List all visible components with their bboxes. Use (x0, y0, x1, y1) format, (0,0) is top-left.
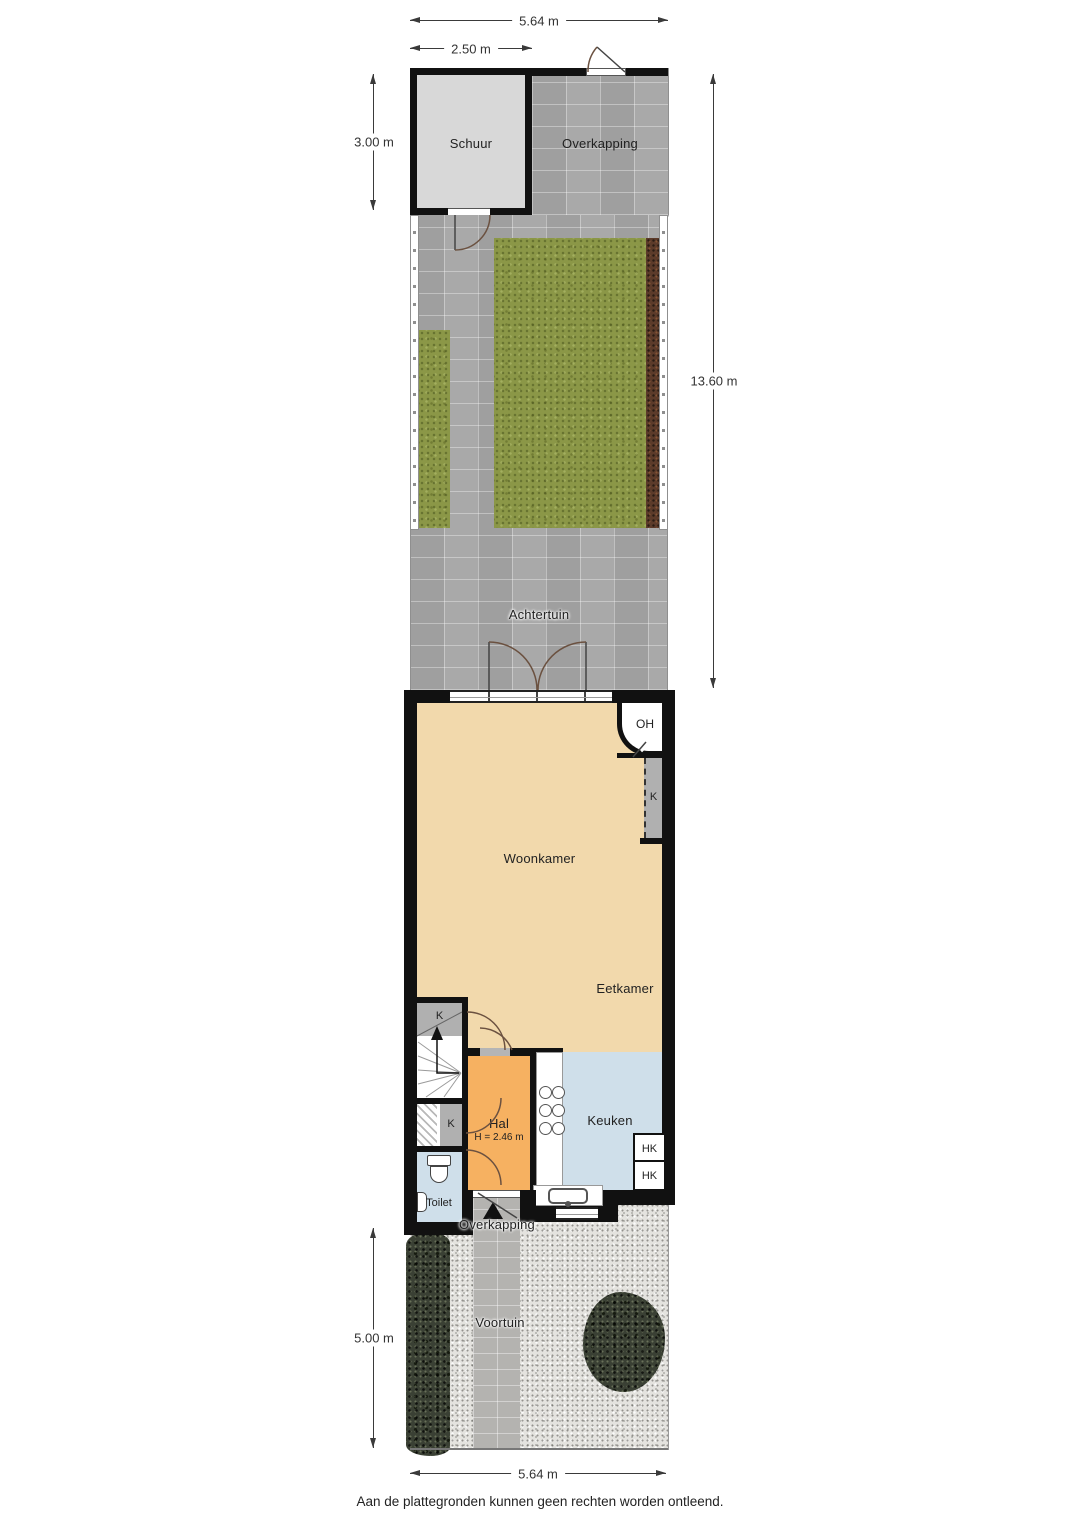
overkapping-entry-label: Overkapping (437, 1217, 557, 1232)
floor-plan-canvas: 5.64 m 2.50 m 3.00 m 13.60 m 5.00 m 5.64… (0, 0, 1080, 1527)
voortuin-label: Voortuin (440, 1315, 560, 1330)
door-swing-overlay (0, 0, 1080, 1527)
